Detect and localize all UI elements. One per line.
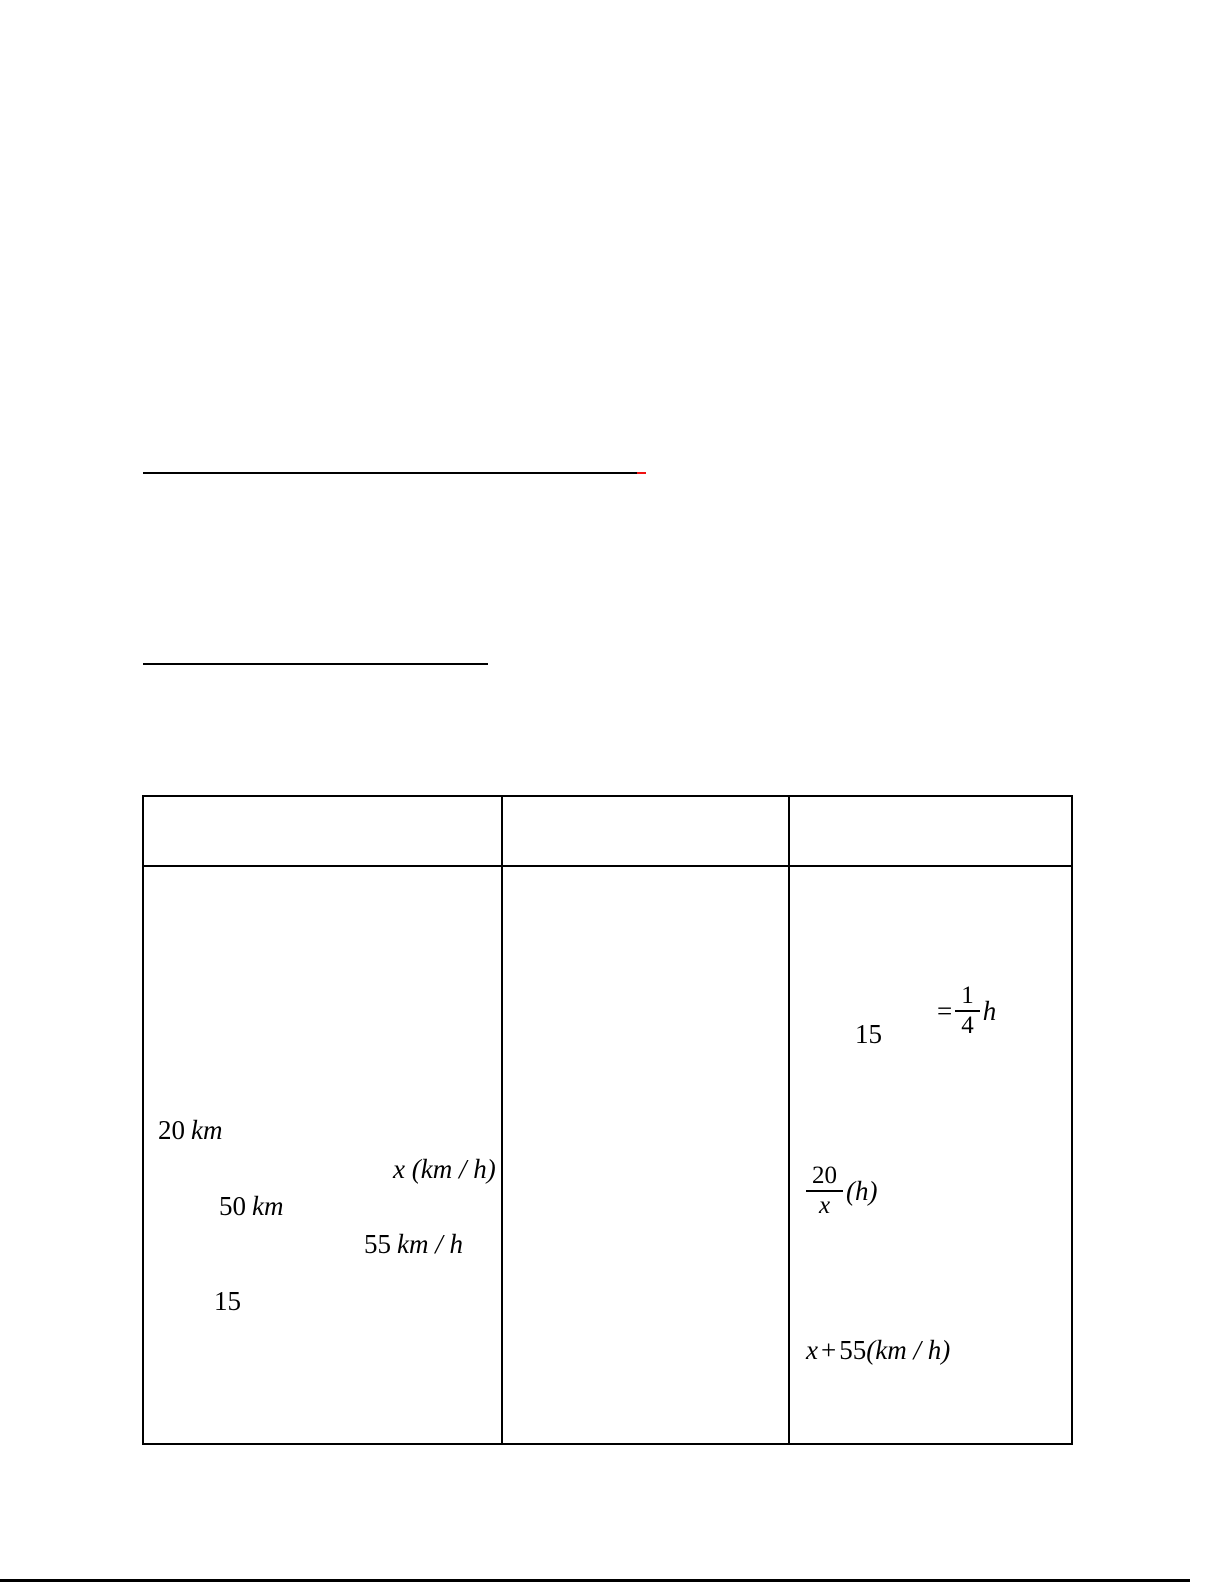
header-cell-2 xyxy=(503,797,790,867)
expr-quarter-hour-suffix: h xyxy=(983,996,997,1026)
expr-x-plus-55-var: x xyxy=(806,1335,818,1365)
expr-x-plus-55-unit: (km / h) xyxy=(866,1335,950,1365)
fraction-20-over-x: 20 x xyxy=(806,1163,843,1220)
answer-blank-line-1 xyxy=(143,472,637,474)
answer-blank-line-1-red-tip xyxy=(637,472,646,474)
fraction-denominator: x xyxy=(819,1192,830,1219)
header-cell-1 xyxy=(144,797,503,867)
expr-20-over-x: 20 x (h) xyxy=(806,1163,877,1220)
expr-x-plus-55: x + 55 (km / h) xyxy=(806,1335,950,1365)
expr-50km-number: 50 xyxy=(219,1191,246,1221)
document-page: 20 km x (km / h) 50 km 55 km / h 15 15 =… xyxy=(0,0,1225,1585)
expr-50km-unit: km xyxy=(252,1191,283,1221)
expr-x-speed: x (km / h) xyxy=(393,1154,496,1184)
expr-15-left: 15 xyxy=(214,1286,241,1316)
expr-20km-unit: km xyxy=(191,1115,222,1145)
expr-quarter-hour: = 1 4 h xyxy=(937,983,996,1040)
expr-x-plus-55-coefficient: 55 xyxy=(839,1335,866,1365)
fraction-numerator: 20 xyxy=(806,1163,843,1192)
expr-20km: 20 km xyxy=(158,1115,222,1145)
expr-20-over-x-suffix: (h) xyxy=(846,1176,877,1206)
body-cell-right: 15 = 1 4 h 20 x (h) x + 55 (km xyxy=(790,867,1071,1443)
body-cell-middle xyxy=(503,867,790,1443)
fraction-denominator: 4 xyxy=(961,1012,974,1039)
answer-blank-line-2 xyxy=(143,663,488,665)
body-cell-left: 20 km x (km / h) 50 km 55 km / h 15 xyxy=(144,867,503,1443)
expr-20km-number: 20 xyxy=(158,1115,185,1145)
expr-50km: 50 km xyxy=(219,1191,283,1221)
plus-sign: + xyxy=(821,1335,836,1365)
expr-quarter-hour-lead: 15 xyxy=(855,1019,882,1049)
fraction-numerator: 1 xyxy=(955,983,980,1012)
expr-55kmh: 55 km / h xyxy=(364,1229,463,1259)
page-bottom-rule xyxy=(0,1579,1190,1582)
header-cell-3 xyxy=(790,797,1071,867)
expr-55kmh-number: 55 xyxy=(364,1229,391,1259)
fraction-one-quarter: 1 4 xyxy=(955,983,980,1040)
worksheet-table: 20 km x (km / h) 50 km 55 km / h 15 15 =… xyxy=(142,795,1073,1445)
expr-55kmh-unit: km / h xyxy=(397,1229,463,1259)
equals-sign: = xyxy=(937,996,952,1026)
